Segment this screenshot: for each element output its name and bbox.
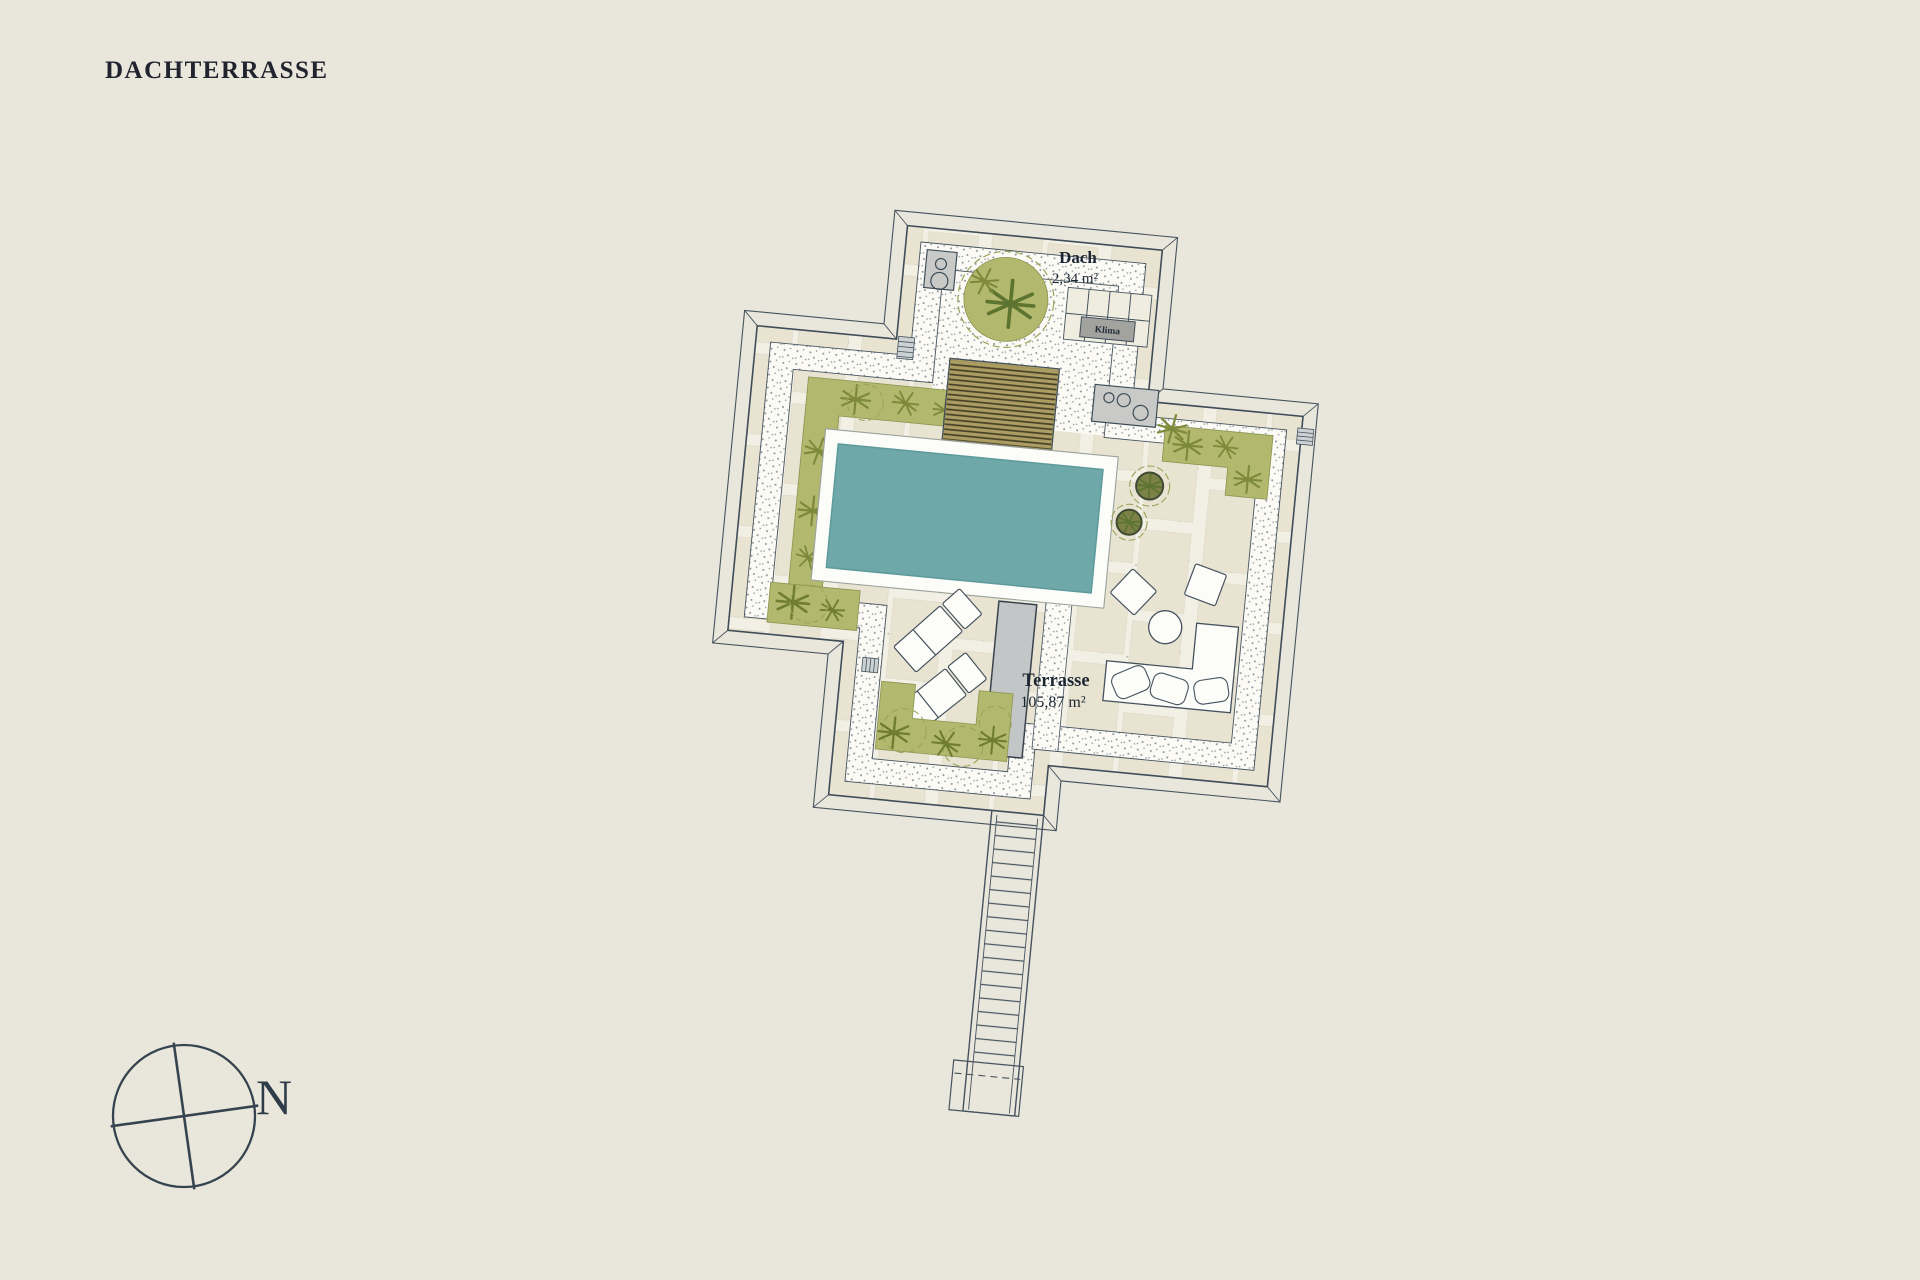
pool	[811, 429, 1118, 608]
compass-north-label: N	[256, 1069, 292, 1125]
klima-unit: Klima	[1063, 287, 1152, 347]
drain-grate	[862, 657, 879, 672]
pool-water	[826, 444, 1103, 593]
floor-plan-page: Klima	[0, 0, 1920, 1280]
sofa-pillow	[1193, 677, 1230, 706]
drain-grate	[897, 336, 915, 359]
floor-plan-canvas: Klima	[0, 0, 1920, 1280]
terrace-vent-unit	[1092, 384, 1159, 427]
compass-icon	[100, 1032, 268, 1199]
wooden-deck	[942, 358, 1059, 450]
dach-room-area: 2,34 m²	[1052, 271, 1099, 287]
roof-vent-unit	[924, 250, 958, 291]
dach-room-name: Dach	[1059, 248, 1097, 267]
staircase	[949, 809, 1048, 1116]
page-title: DACHTERRASSE	[105, 57, 329, 84]
roof-terrace-plan: Klima	[670, 197, 1333, 1138]
drain-grate	[1296, 428, 1313, 445]
terrasse-room-area: 105,87 m²	[1020, 694, 1085, 711]
terrasse-room-name: Terrasse	[1022, 671, 1089, 691]
